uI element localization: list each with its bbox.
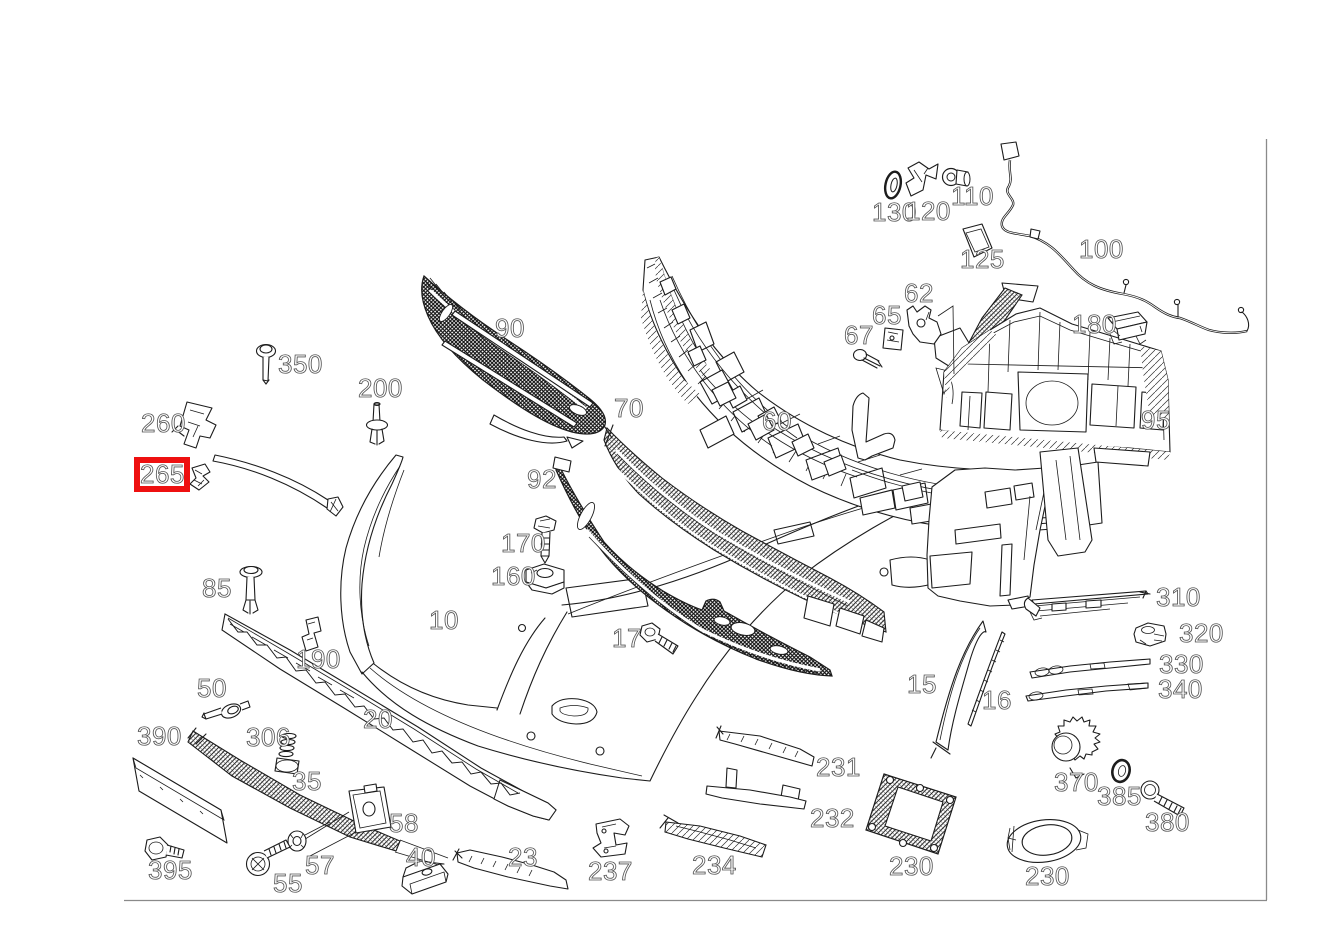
svg-text:120: 120 <box>906 196 951 226</box>
svg-text:385: 385 <box>1097 781 1142 811</box>
svg-text:160: 160 <box>491 561 536 591</box>
svg-text:231: 231 <box>816 752 861 782</box>
svg-text:20: 20 <box>363 704 393 734</box>
svg-text:65: 65 <box>872 300 902 330</box>
svg-text:234: 234 <box>692 850 737 880</box>
svg-text:125: 125 <box>960 244 1005 274</box>
svg-text:17: 17 <box>612 623 642 653</box>
svg-text:10: 10 <box>429 605 459 635</box>
svg-text:92: 92 <box>527 464 557 494</box>
svg-text:310: 310 <box>1156 582 1201 612</box>
svg-text:90: 90 <box>495 313 525 343</box>
svg-text:350: 350 <box>278 349 323 379</box>
svg-text:100: 100 <box>1079 234 1124 264</box>
svg-text:62: 62 <box>904 278 934 308</box>
svg-text:370: 370 <box>1054 767 1099 797</box>
svg-text:40: 40 <box>406 842 436 872</box>
svg-text:95: 95 <box>1141 405 1171 435</box>
svg-text:190: 190 <box>296 644 341 674</box>
svg-text:380: 380 <box>1145 807 1190 837</box>
svg-text:395: 395 <box>148 855 193 885</box>
svg-text:23: 23 <box>508 842 538 872</box>
svg-text:230: 230 <box>1025 861 1070 891</box>
svg-text:50: 50 <box>197 673 227 703</box>
svg-text:260: 260 <box>141 408 186 438</box>
svg-text:320: 320 <box>1179 618 1224 648</box>
svg-text:35: 35 <box>292 766 322 796</box>
svg-text:58: 58 <box>389 808 419 838</box>
svg-text:16: 16 <box>982 685 1012 715</box>
svg-text:390: 390 <box>137 721 182 751</box>
svg-text:110: 110 <box>951 181 994 211</box>
svg-text:57: 57 <box>305 850 335 880</box>
svg-text:230: 230 <box>889 851 934 881</box>
svg-text:232: 232 <box>810 803 855 833</box>
svg-text:340: 340 <box>1158 674 1203 704</box>
svg-text:200: 200 <box>358 373 403 403</box>
svg-text:170: 170 <box>501 528 546 558</box>
svg-text:180: 180 <box>1072 309 1117 339</box>
svg-text:67: 67 <box>844 320 874 350</box>
svg-text:70: 70 <box>614 393 644 423</box>
svg-text:85: 85 <box>202 573 232 603</box>
svg-text:306: 306 <box>246 722 291 752</box>
svg-text:265: 265 <box>140 459 185 489</box>
svg-text:237: 237 <box>588 856 633 886</box>
svg-text:15: 15 <box>907 669 937 699</box>
svg-text:55: 55 <box>273 868 303 898</box>
svg-text:60: 60 <box>762 406 792 436</box>
